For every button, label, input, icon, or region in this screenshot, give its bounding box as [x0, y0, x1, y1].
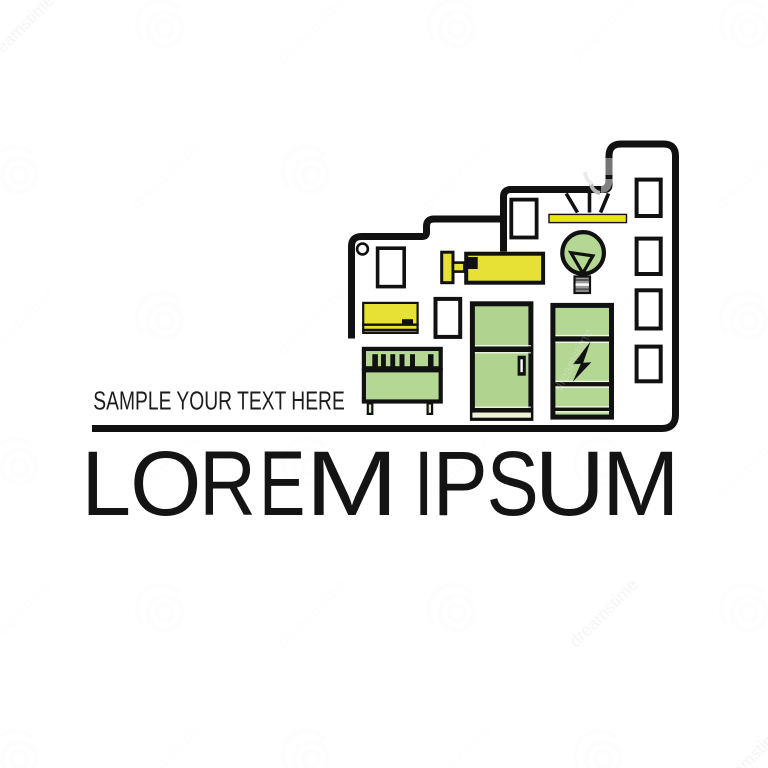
- svg-text:S: S: [487, 433, 539, 535]
- svg-text:I: I: [414, 432, 434, 535]
- svg-text:O: O: [130, 433, 202, 535]
- svg-text:P: P: [433, 432, 488, 535]
- svg-text:R: R: [199, 433, 256, 535]
- svg-text:E: E: [259, 432, 305, 535]
- svg-text:L: L: [81, 433, 131, 535]
- svg-text:M: M: [305, 431, 398, 534]
- svg-text:SAMPLE YOUR TEXT HERE: SAMPLE YOUR TEXT HERE: [93, 386, 344, 416]
- svg-text:M: M: [602, 431, 680, 534]
- svg-text:U: U: [535, 432, 605, 535]
